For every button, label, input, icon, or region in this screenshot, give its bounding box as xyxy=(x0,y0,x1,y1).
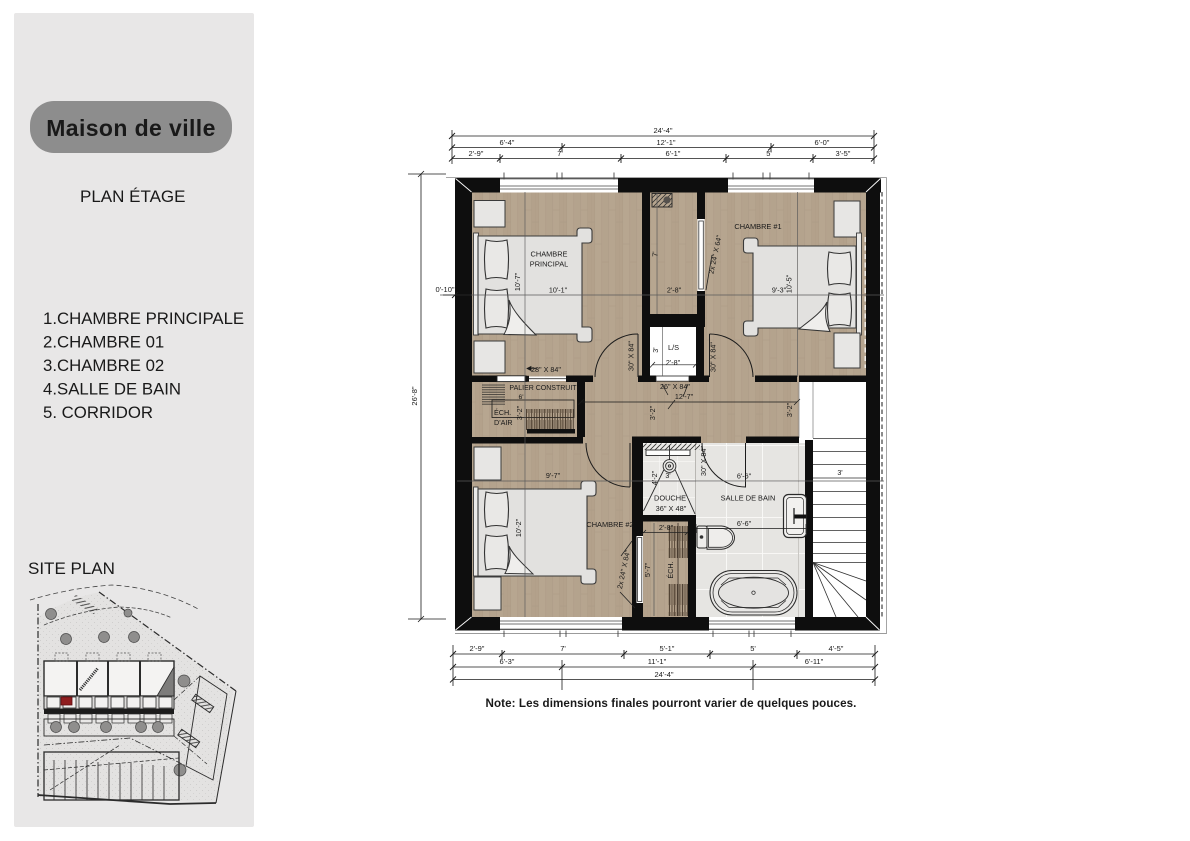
svg-text:3': 3' xyxy=(665,471,671,480)
svg-text:10'-5": 10'-5" xyxy=(785,274,794,293)
svg-text:28" X 84": 28" X 84" xyxy=(531,365,561,374)
svg-text:6'-6": 6'-6" xyxy=(737,472,752,481)
svg-text:7': 7' xyxy=(560,644,566,653)
svg-text:5'-7": 5'-7" xyxy=(643,562,652,577)
svg-text:24'-4": 24'-4" xyxy=(653,126,672,135)
svg-text:CHAMBRE: CHAMBRE xyxy=(531,250,568,259)
svg-text:2'-8": 2'-8" xyxy=(666,358,681,367)
svg-text:Note: Les dimensions finales p: Note: Les dimensions finales pourront va… xyxy=(485,697,856,710)
svg-text:3': 3' xyxy=(837,468,843,477)
svg-text:2'-8": 2'-8" xyxy=(659,523,674,532)
svg-text:30" X 84": 30" X 84" xyxy=(699,446,708,476)
svg-text:4.SALLE DE BAIN: 4.SALLE DE BAIN xyxy=(43,380,181,399)
svg-text:4'-2": 4'-2" xyxy=(650,470,659,485)
svg-text:3.CHAMBRE 02: 3.CHAMBRE 02 xyxy=(43,356,164,375)
svg-text:6'-3": 6'-3" xyxy=(500,657,515,666)
svg-text:26'-8": 26'-8" xyxy=(410,386,419,405)
svg-text:5': 5' xyxy=(766,149,772,158)
svg-text:5'-1": 5'-1" xyxy=(660,644,675,653)
svg-text:DOUCHE: DOUCHE xyxy=(654,494,686,503)
svg-text:0'-10": 0'-10" xyxy=(435,285,454,294)
svg-text:3'-2": 3'-2" xyxy=(785,402,794,417)
svg-text:7': 7' xyxy=(557,149,563,158)
svg-text:24'-4": 24'-4" xyxy=(654,670,673,679)
svg-text:3'-2": 3'-2" xyxy=(648,405,657,420)
svg-text:7': 7' xyxy=(651,251,660,257)
svg-text:D'AIR: D'AIR xyxy=(494,418,513,427)
svg-text:30" X 84": 30" X 84" xyxy=(709,342,718,372)
svg-text:Maison de ville: Maison de ville xyxy=(46,115,216,141)
svg-text:6'-6": 6'-6" xyxy=(737,519,752,528)
svg-text:6': 6' xyxy=(518,394,523,401)
svg-text:6'-11": 6'-11" xyxy=(805,657,824,666)
svg-text:CHAMBRE #1: CHAMBRE #1 xyxy=(734,222,781,231)
svg-text:4'-5": 4'-5" xyxy=(829,644,844,653)
svg-text:2.CHAMBRE 01: 2.CHAMBRE 01 xyxy=(43,333,164,352)
svg-text:PRINCIPAL: PRINCIPAL xyxy=(530,260,568,269)
svg-text:3'-2": 3'-2" xyxy=(515,405,524,420)
svg-text:ÉCH.: ÉCH. xyxy=(494,408,511,417)
svg-text:10'-1": 10'-1" xyxy=(549,286,568,295)
svg-text:6'-1": 6'-1" xyxy=(666,149,681,158)
svg-text:2'-9": 2'-9" xyxy=(469,149,484,158)
svg-text:6'-4": 6'-4" xyxy=(500,138,515,147)
svg-text:CHAMBRE #2: CHAMBRE #2 xyxy=(586,520,633,529)
svg-text:10'-2": 10'-2" xyxy=(514,518,523,537)
svg-text:SITE PLAN: SITE PLAN xyxy=(28,559,115,578)
svg-text:PALIER CONSTRUIT: PALIER CONSTRUIT xyxy=(509,385,577,392)
svg-text:3': 3' xyxy=(651,347,660,353)
svg-text:30" X 84": 30" X 84" xyxy=(627,341,636,371)
svg-text:2'-9": 2'-9" xyxy=(470,644,485,653)
svg-text:SALLE DE BAIN: SALLE DE BAIN xyxy=(721,494,776,503)
svg-text:2'-8": 2'-8" xyxy=(667,286,682,295)
svg-text:ÉCH.: ÉCH. xyxy=(666,561,675,578)
svg-text:10'-7": 10'-7" xyxy=(513,272,522,291)
svg-text:5. CORRIDOR: 5. CORRIDOR xyxy=(43,403,153,422)
svg-text:L/S: L/S xyxy=(668,343,679,352)
svg-text:1.CHAMBRE PRINCIPALE: 1.CHAMBRE PRINCIPALE xyxy=(43,309,244,328)
svg-text:PLAN ÉTAGE: PLAN ÉTAGE xyxy=(80,187,186,206)
svg-text:12'-1": 12'-1" xyxy=(656,138,675,147)
svg-text:3'-5": 3'-5" xyxy=(836,149,851,158)
svg-text:36" X 48": 36" X 48" xyxy=(656,504,687,513)
svg-text:6'-0": 6'-0" xyxy=(815,138,830,147)
svg-text:5': 5' xyxy=(750,644,756,653)
svg-text:11'-1": 11'-1" xyxy=(648,657,667,666)
svg-text:9'-7": 9'-7" xyxy=(546,471,561,480)
